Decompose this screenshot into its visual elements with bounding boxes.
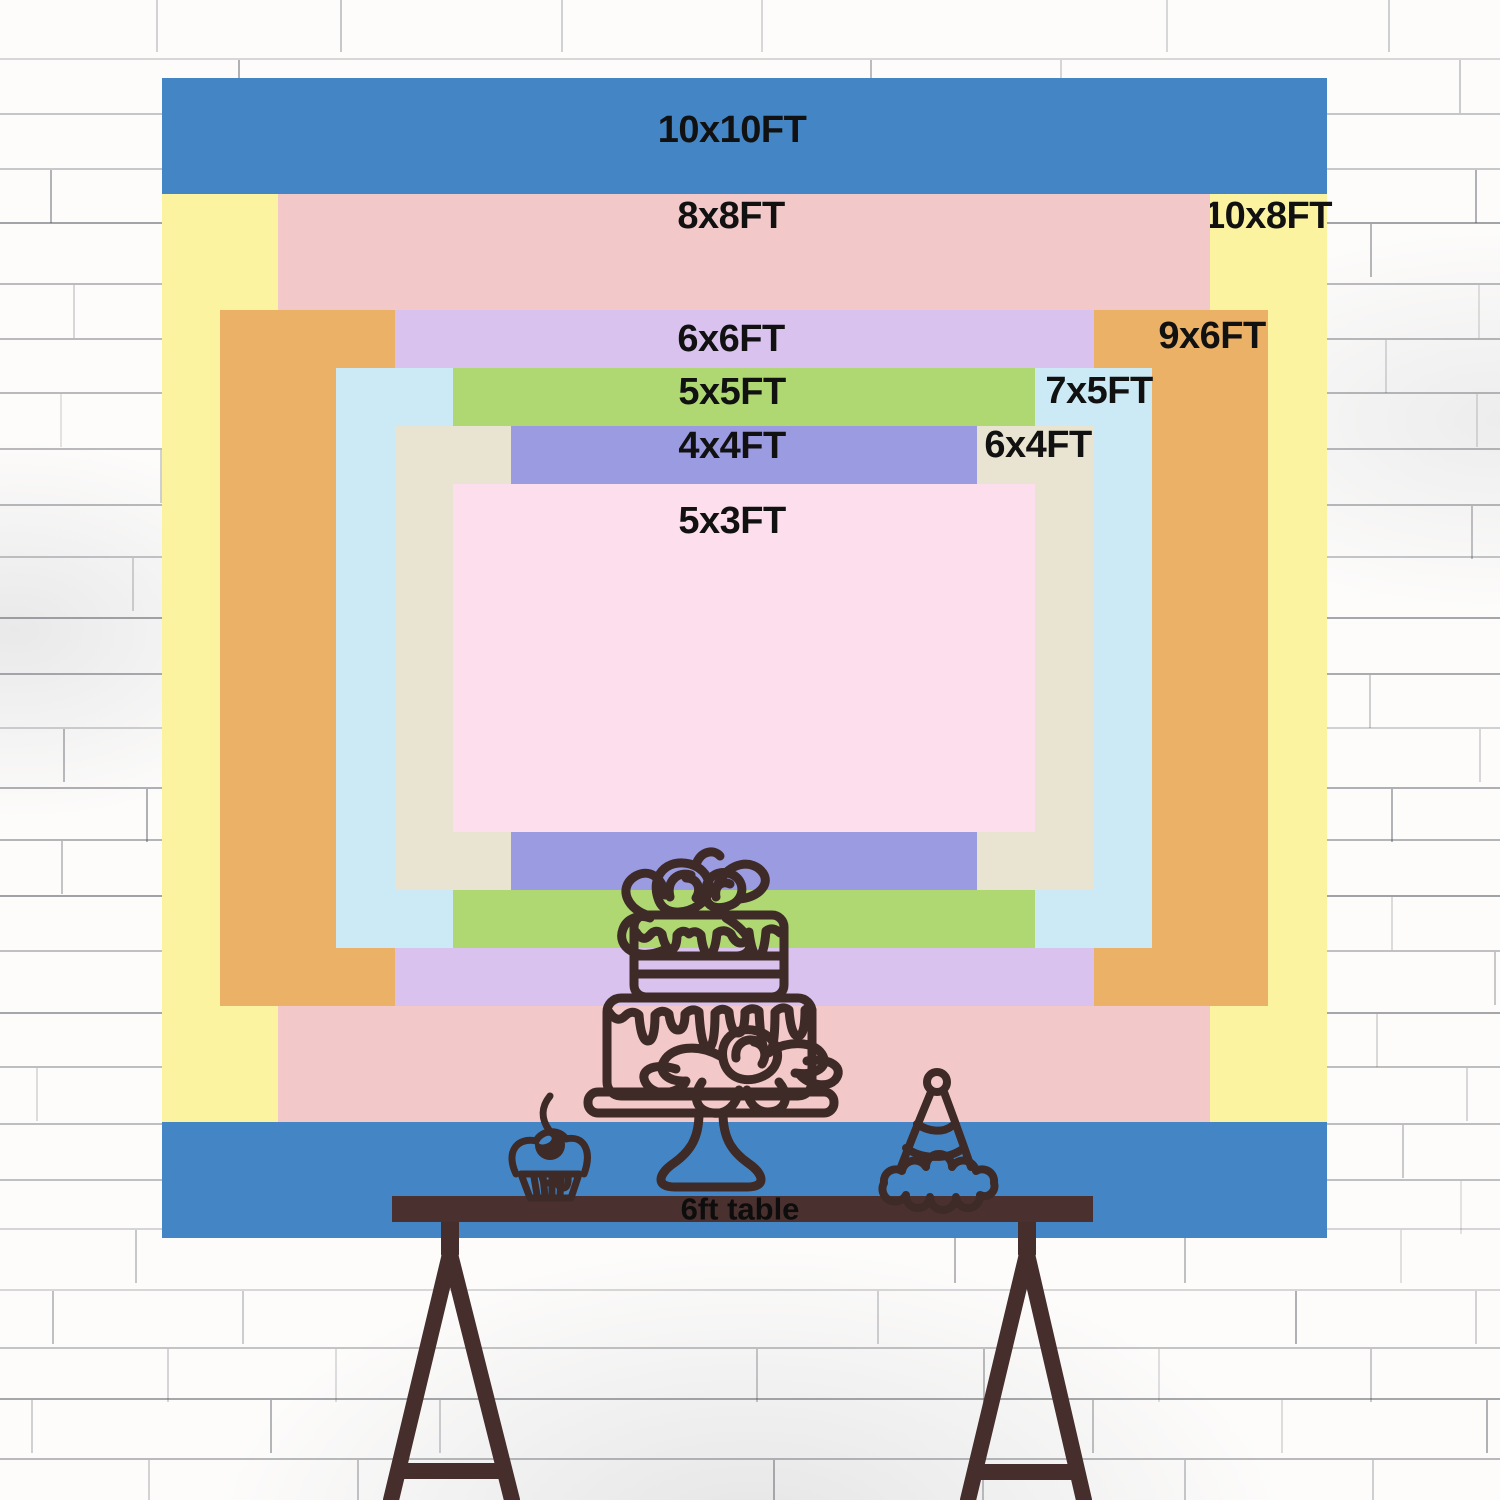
- size-label-10x10ft: 10x10FT: [658, 111, 807, 149]
- size-label-4x4ft: 4x4FT: [678, 427, 785, 465]
- size-label-6x6ft: 6x6FT: [677, 320, 784, 358]
- size-label-9x6ft: 9x6FT: [1158, 317, 1265, 355]
- size-label-10x8ft: 10x8FT: [1204, 197, 1332, 235]
- size-label-8x8ft: 8x8FT: [677, 197, 784, 235]
- size-label-6x4ft: 6x4FT: [984, 426, 1091, 464]
- size-chart-image: 10x10FT10x8FT8x8FT9x6FT6x6FT7x5FT5x5FT6x…: [0, 0, 1500, 1500]
- table-length-label: 6ft table: [681, 1194, 800, 1225]
- backdrop-size-chart: 10x10FT10x8FT8x8FT9x6FT6x6FT7x5FT5x5FT6x…: [0, 0, 1500, 1500]
- size-label-7x5ft: 7x5FT: [1045, 372, 1152, 410]
- size-label-5x3ft: 5x3FT: [678, 502, 785, 540]
- size-label-5x5ft: 5x5FT: [678, 373, 785, 411]
